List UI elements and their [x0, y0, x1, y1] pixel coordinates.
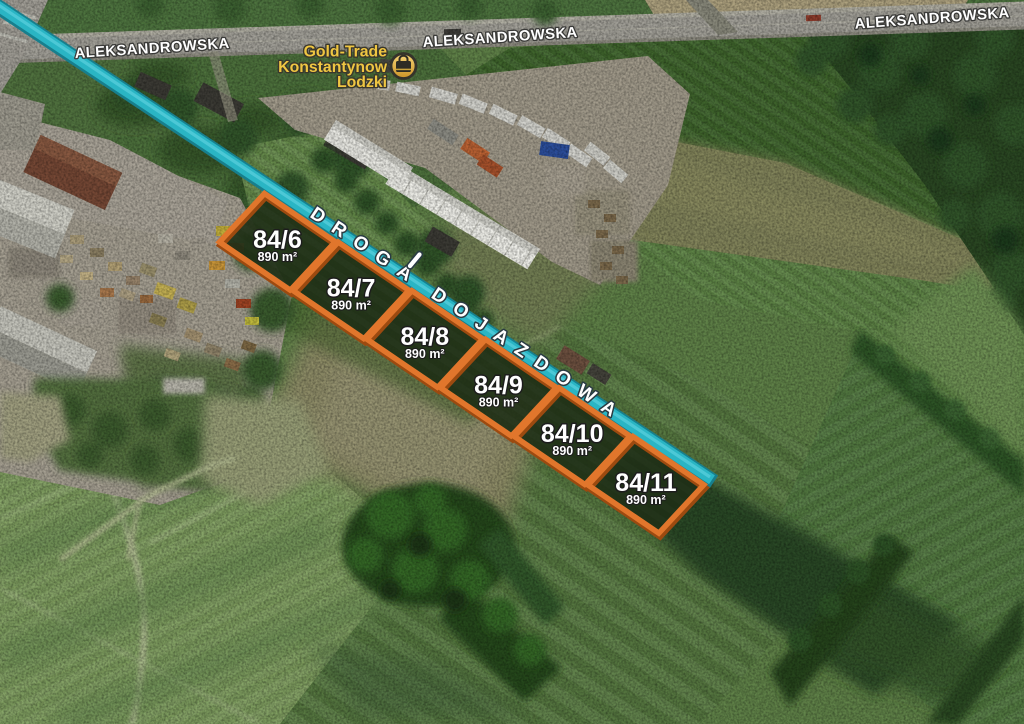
svg-text:890 m²: 890 m² [552, 444, 592, 458]
svg-text:890 m²: 890 m² [258, 250, 298, 264]
svg-text:890 m²: 890 m² [626, 493, 666, 507]
svg-text:890 m²: 890 m² [405, 347, 445, 361]
svg-text:Lodzki: Lodzki [337, 74, 387, 91]
svg-text:890 m²: 890 m² [479, 396, 519, 410]
svg-text:890 m²: 890 m² [331, 298, 371, 312]
